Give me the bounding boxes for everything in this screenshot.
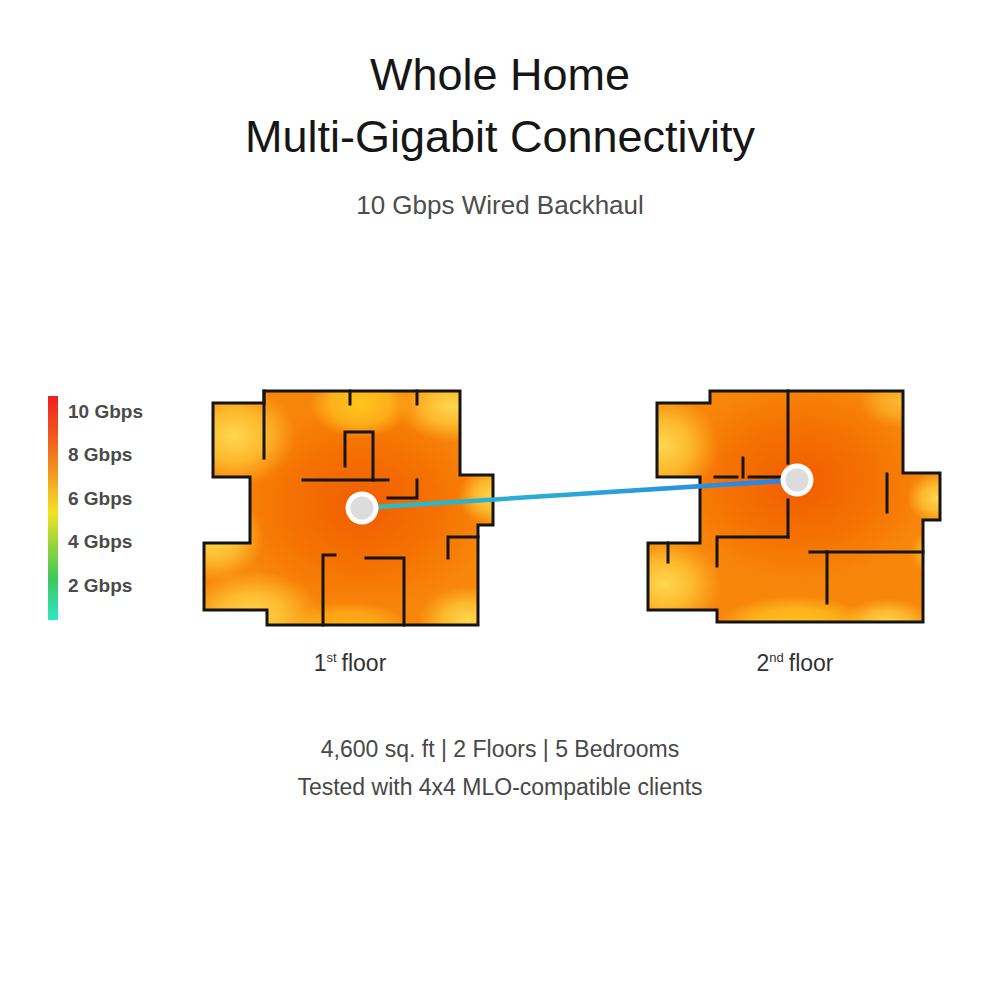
legend-label-4gbps: 4 Gbps <box>68 531 132 553</box>
floor-label-1st: 1stfloor <box>200 650 500 677</box>
speed-legend: 10 Gbps 8 Gbps 6 Gbps 4 Gbps 2 Gbps <box>48 394 188 626</box>
floor-word: floor <box>342 650 387 676</box>
test-conditions-line2: Tested with 4x4 MLO-compatible clients <box>0 774 1000 801</box>
title-line-2: Multi-Gigabit Connectivity <box>0 106 1000 168</box>
marketing-infographic: Whole Home Multi-Gigabit Connectivity 10… <box>0 0 1000 1000</box>
test-conditions-line1: 4,600 sq. ft | 2 Floors | 5 Bedrooms <box>0 736 1000 763</box>
floor-number: 2 <box>756 650 769 676</box>
legend-label-2gbps: 2 Gbps <box>68 575 132 597</box>
floor-label-2nd: 2ndfloor <box>645 650 945 677</box>
mesh-node-icon <box>781 464 814 497</box>
legend-label-10gbps: 10 Gbps <box>68 401 143 423</box>
subtitle: 10 Gbps Wired Backhaul <box>0 190 1000 221</box>
floor-ordinal-suffix: nd <box>769 650 783 665</box>
title-line-1: Whole Home <box>0 44 1000 106</box>
floor-number: 1 <box>314 650 327 676</box>
backhaul-link-overlay <box>330 450 830 530</box>
page-title: Whole Home Multi-Gigabit Connectivity <box>0 44 1000 168</box>
header: Whole Home Multi-Gigabit Connectivity 10… <box>0 44 1000 221</box>
floor-ordinal-suffix: st <box>326 650 336 665</box>
legend-label-8gbps: 8 Gbps <box>68 444 132 466</box>
mesh-node-icon <box>346 492 379 525</box>
wired-backhaul-line <box>362 480 797 508</box>
floor-word: floor <box>789 650 834 676</box>
legend-label-6gbps: 6 Gbps <box>68 488 132 510</box>
legend-gradient-bar <box>48 396 58 620</box>
